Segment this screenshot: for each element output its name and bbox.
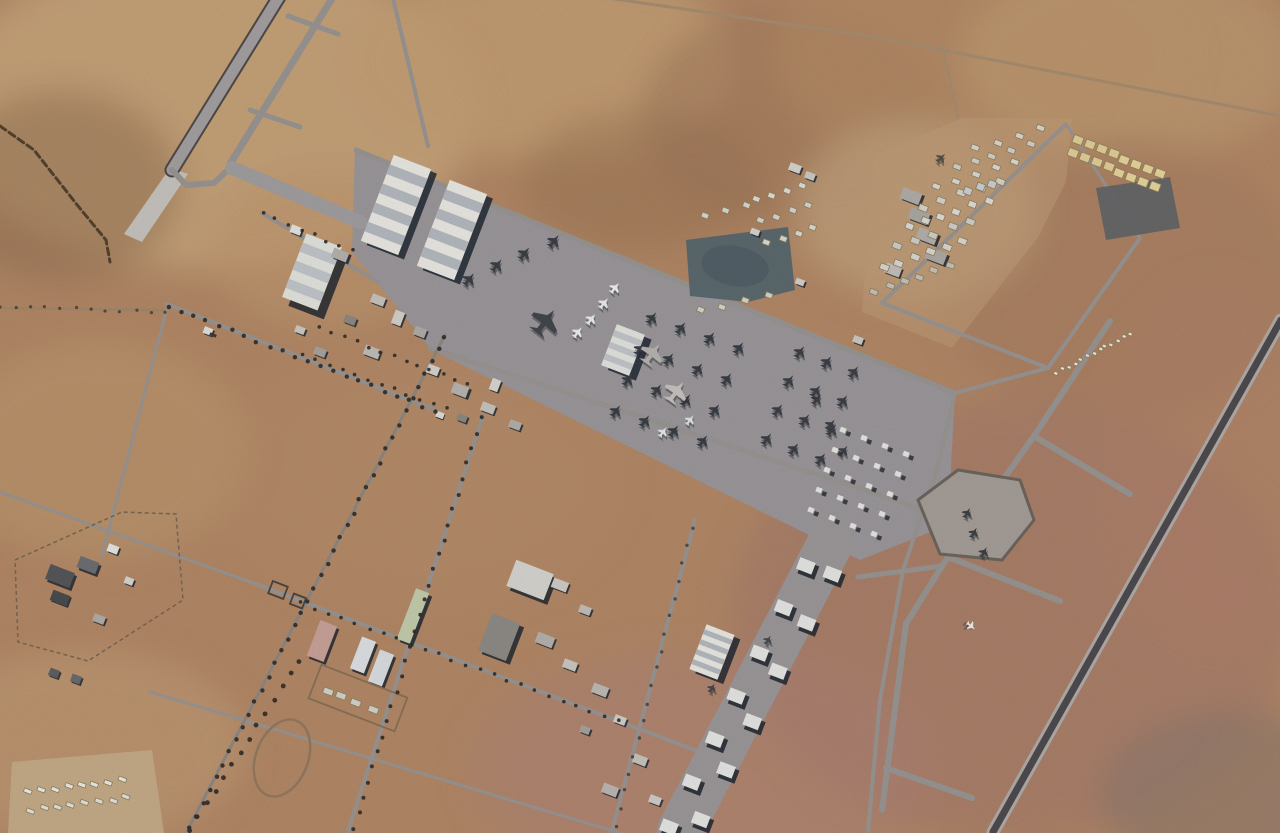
image-grain-overlay bbox=[0, 0, 1280, 833]
satellite-image bbox=[0, 0, 1280, 833]
airbase-satellite-scene bbox=[0, 0, 1280, 833]
